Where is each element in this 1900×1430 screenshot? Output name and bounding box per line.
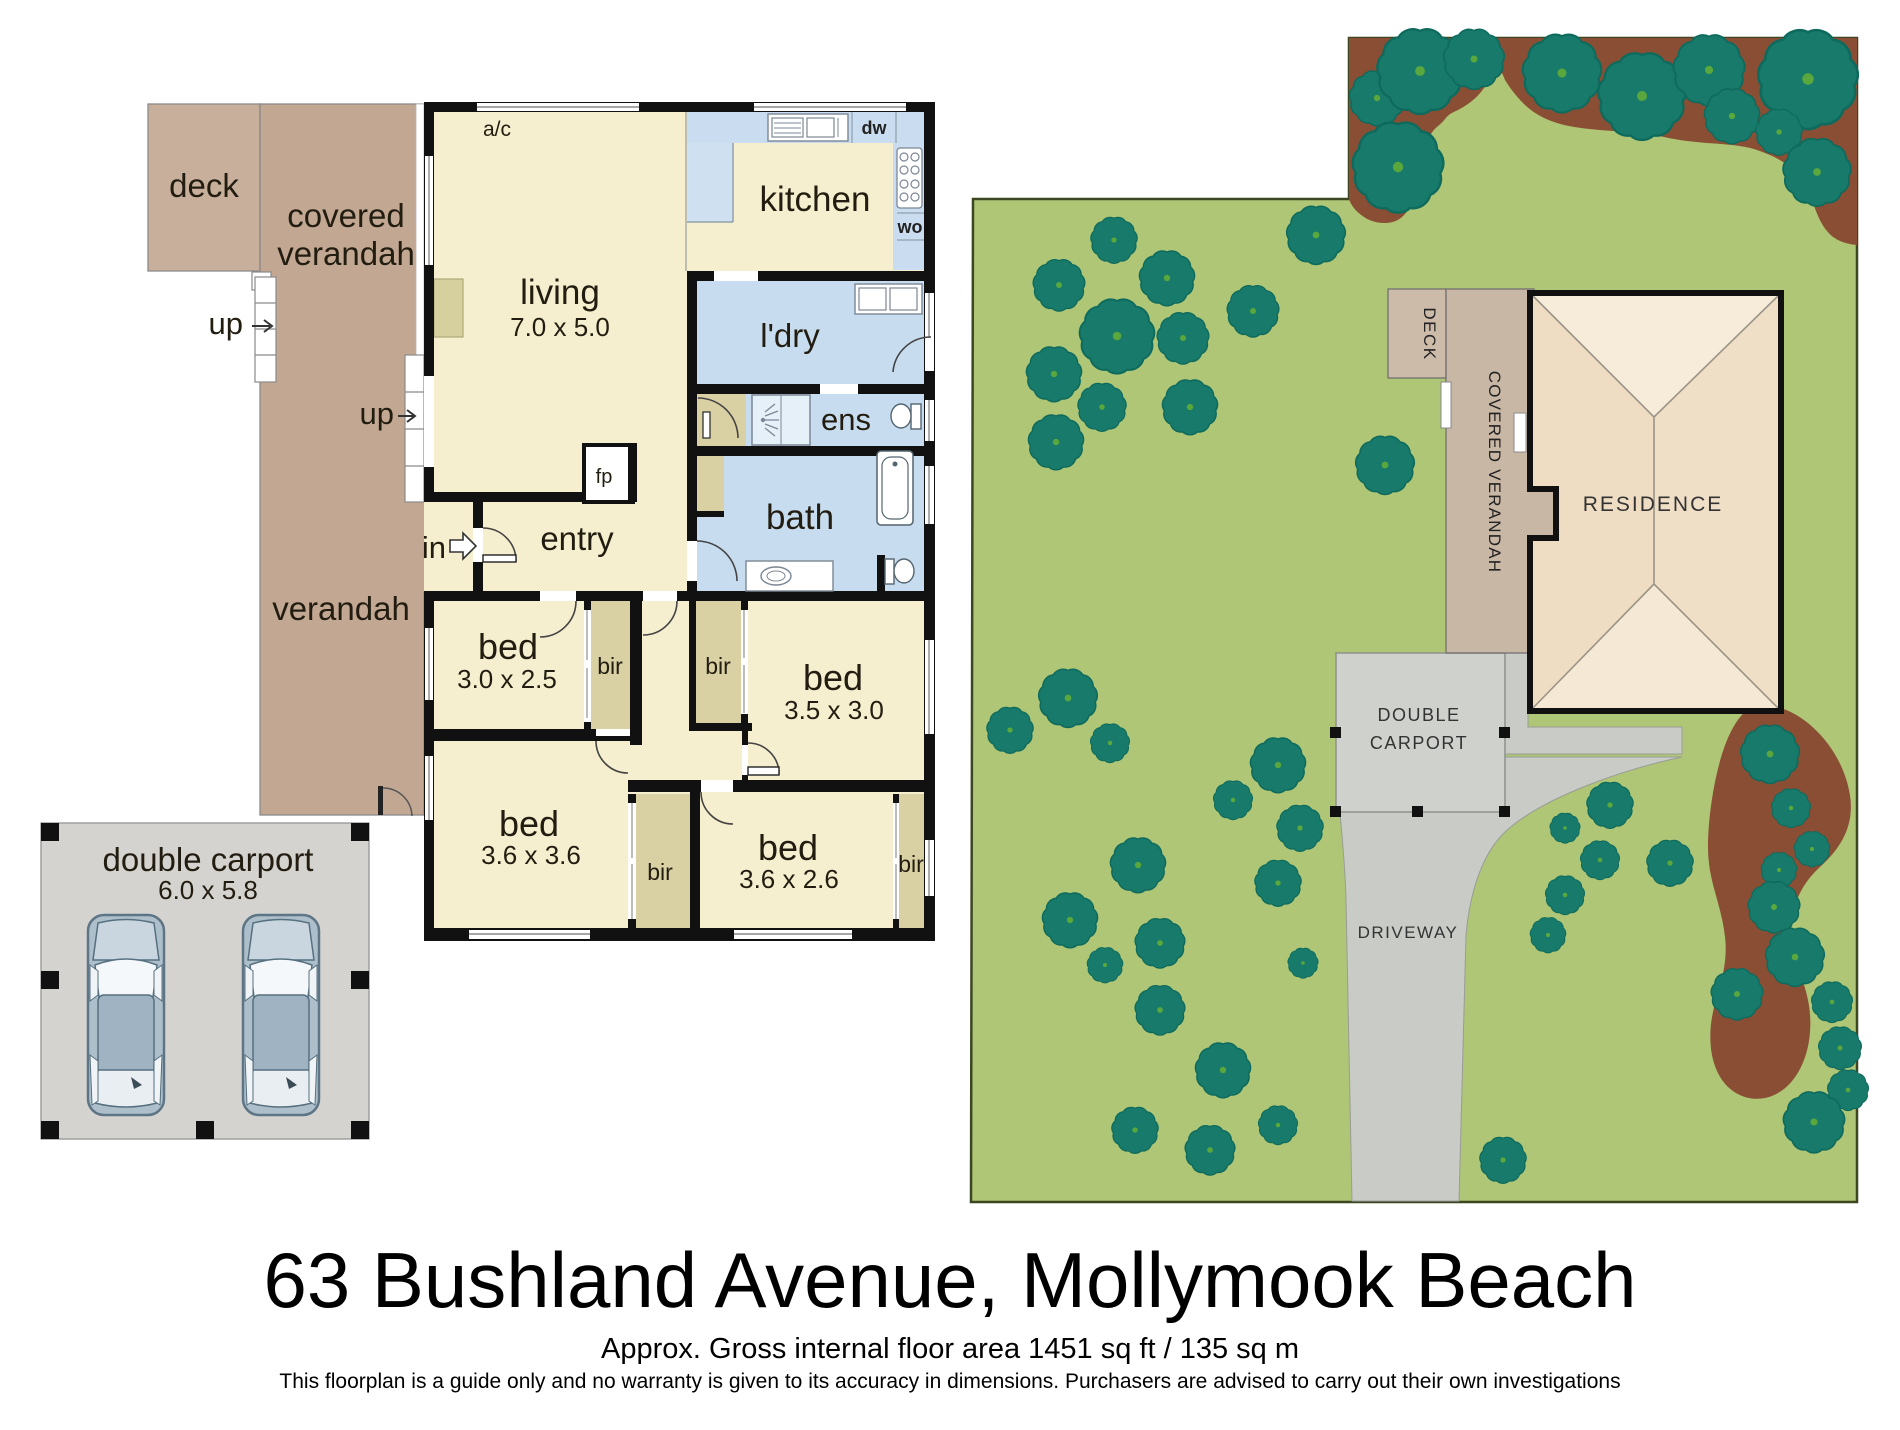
svg-text:verandah: verandah — [277, 235, 415, 272]
svg-text:ens: ens — [821, 402, 871, 437]
svg-text:Approx. Gross internal floor a: Approx. Gross internal floor area 1451 s… — [601, 1333, 1299, 1365]
svg-text:bir: bir — [597, 653, 623, 679]
svg-text:DRIVEWAY: DRIVEWAY — [1358, 923, 1459, 942]
svg-text:in: in — [422, 530, 446, 565]
svg-text:bed: bed — [478, 626, 538, 667]
svg-text:fp: fp — [596, 466, 613, 488]
svg-text:RESIDENCE: RESIDENCE — [1583, 493, 1724, 516]
svg-text:entry: entry — [540, 520, 614, 557]
svg-text:double carport: double carport — [103, 841, 314, 878]
svg-text:wo: wo — [897, 217, 923, 237]
svg-text:deck: deck — [169, 167, 239, 204]
svg-text:bir: bir — [898, 851, 924, 877]
svg-text:bed: bed — [499, 803, 559, 844]
svg-text:covered: covered — [287, 197, 404, 234]
svg-text:up: up — [360, 396, 394, 431]
svg-text:3.5 x 3.0: 3.5 x 3.0 — [784, 695, 884, 725]
svg-text:bir: bir — [705, 653, 731, 679]
svg-text:3.6 x 2.6: 3.6 x 2.6 — [739, 864, 839, 894]
svg-text:This floorplan is a guide only: This floorplan is a guide only and no wa… — [279, 1370, 1620, 1393]
svg-text:l'dry: l'dry — [760, 317, 820, 354]
svg-text:up: up — [209, 306, 243, 341]
svg-text:3.6 x 3.6: 3.6 x 3.6 — [481, 840, 581, 870]
svg-text:63 Bushland Avenue, Mollymook: 63 Bushland Avenue, Mollymook Beach — [263, 1236, 1636, 1324]
svg-text:DECK: DECK — [1420, 307, 1439, 360]
svg-text:dw: dw — [862, 118, 888, 138]
svg-text:verandah: verandah — [272, 590, 410, 627]
svg-text:a/c: a/c — [483, 118, 511, 141]
svg-text:CARPORT: CARPORT — [1370, 733, 1468, 753]
svg-text:bath: bath — [766, 498, 834, 537]
svg-text:DOUBLE: DOUBLE — [1377, 705, 1460, 725]
svg-text:kitchen: kitchen — [760, 180, 871, 219]
svg-text:bir: bir — [647, 859, 673, 885]
svg-text:bed: bed — [758, 827, 818, 868]
svg-text:6.0 x 5.8: 6.0 x 5.8 — [158, 875, 258, 905]
svg-text:7.0 x 5.0: 7.0 x 5.0 — [510, 312, 610, 342]
svg-text:3.0 x 2.5: 3.0 x 2.5 — [457, 664, 557, 694]
svg-text:bed: bed — [803, 657, 863, 698]
svg-text:COVERED VERANDAH: COVERED VERANDAH — [1485, 371, 1504, 573]
svg-text:living: living — [520, 273, 600, 312]
